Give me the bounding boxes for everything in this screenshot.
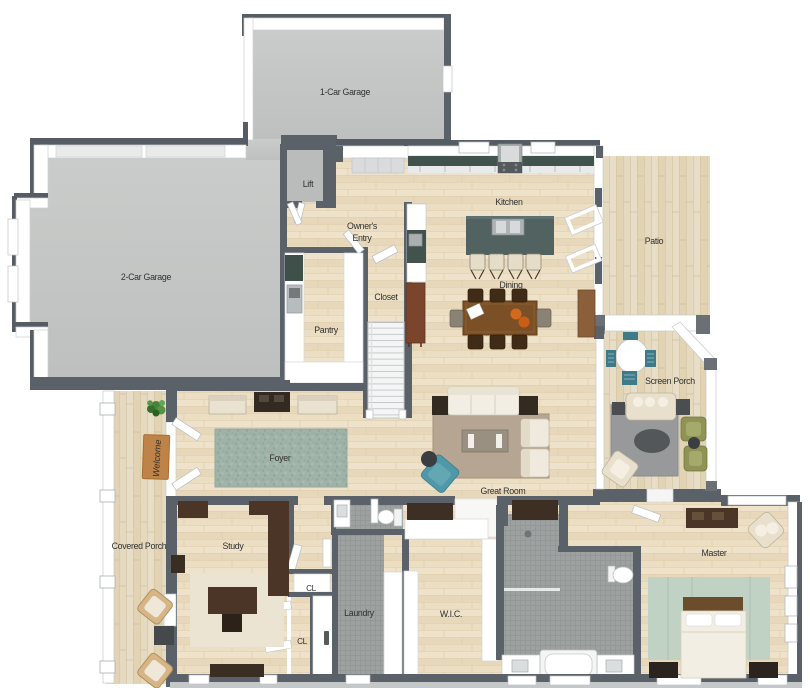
svg-text:CL: CL [297, 637, 308, 646]
svg-text:Study: Study [223, 541, 245, 551]
svg-text:Welcome: Welcome [151, 439, 163, 477]
svg-text:Dining: Dining [499, 280, 523, 290]
svg-text:Foyer: Foyer [270, 453, 291, 463]
svg-text:Pantry: Pantry [314, 325, 339, 335]
svg-text:Covered Porch: Covered Porch [112, 541, 167, 551]
svg-text:Lift: Lift [303, 179, 314, 189]
svg-text:Patio: Patio [645, 236, 664, 246]
svg-text:Screen Porch: Screen Porch [645, 376, 695, 386]
svg-text:Kitchen: Kitchen [495, 197, 523, 207]
svg-text:Laundry: Laundry [344, 608, 375, 618]
svg-text:2-Car Garage: 2-Car Garage [121, 272, 172, 282]
svg-text:Closet: Closet [374, 292, 398, 302]
svg-text:Master: Master [701, 548, 726, 558]
svg-text:Entry: Entry [352, 233, 372, 243]
svg-text:Owner's: Owner's [347, 221, 378, 231]
svg-text:W.I.C.: W.I.C. [440, 609, 462, 619]
svg-text:Great Room: Great Room [481, 486, 526, 496]
svg-text:CL: CL [306, 584, 317, 593]
svg-text:1-Car Garage: 1-Car Garage [320, 87, 371, 97]
